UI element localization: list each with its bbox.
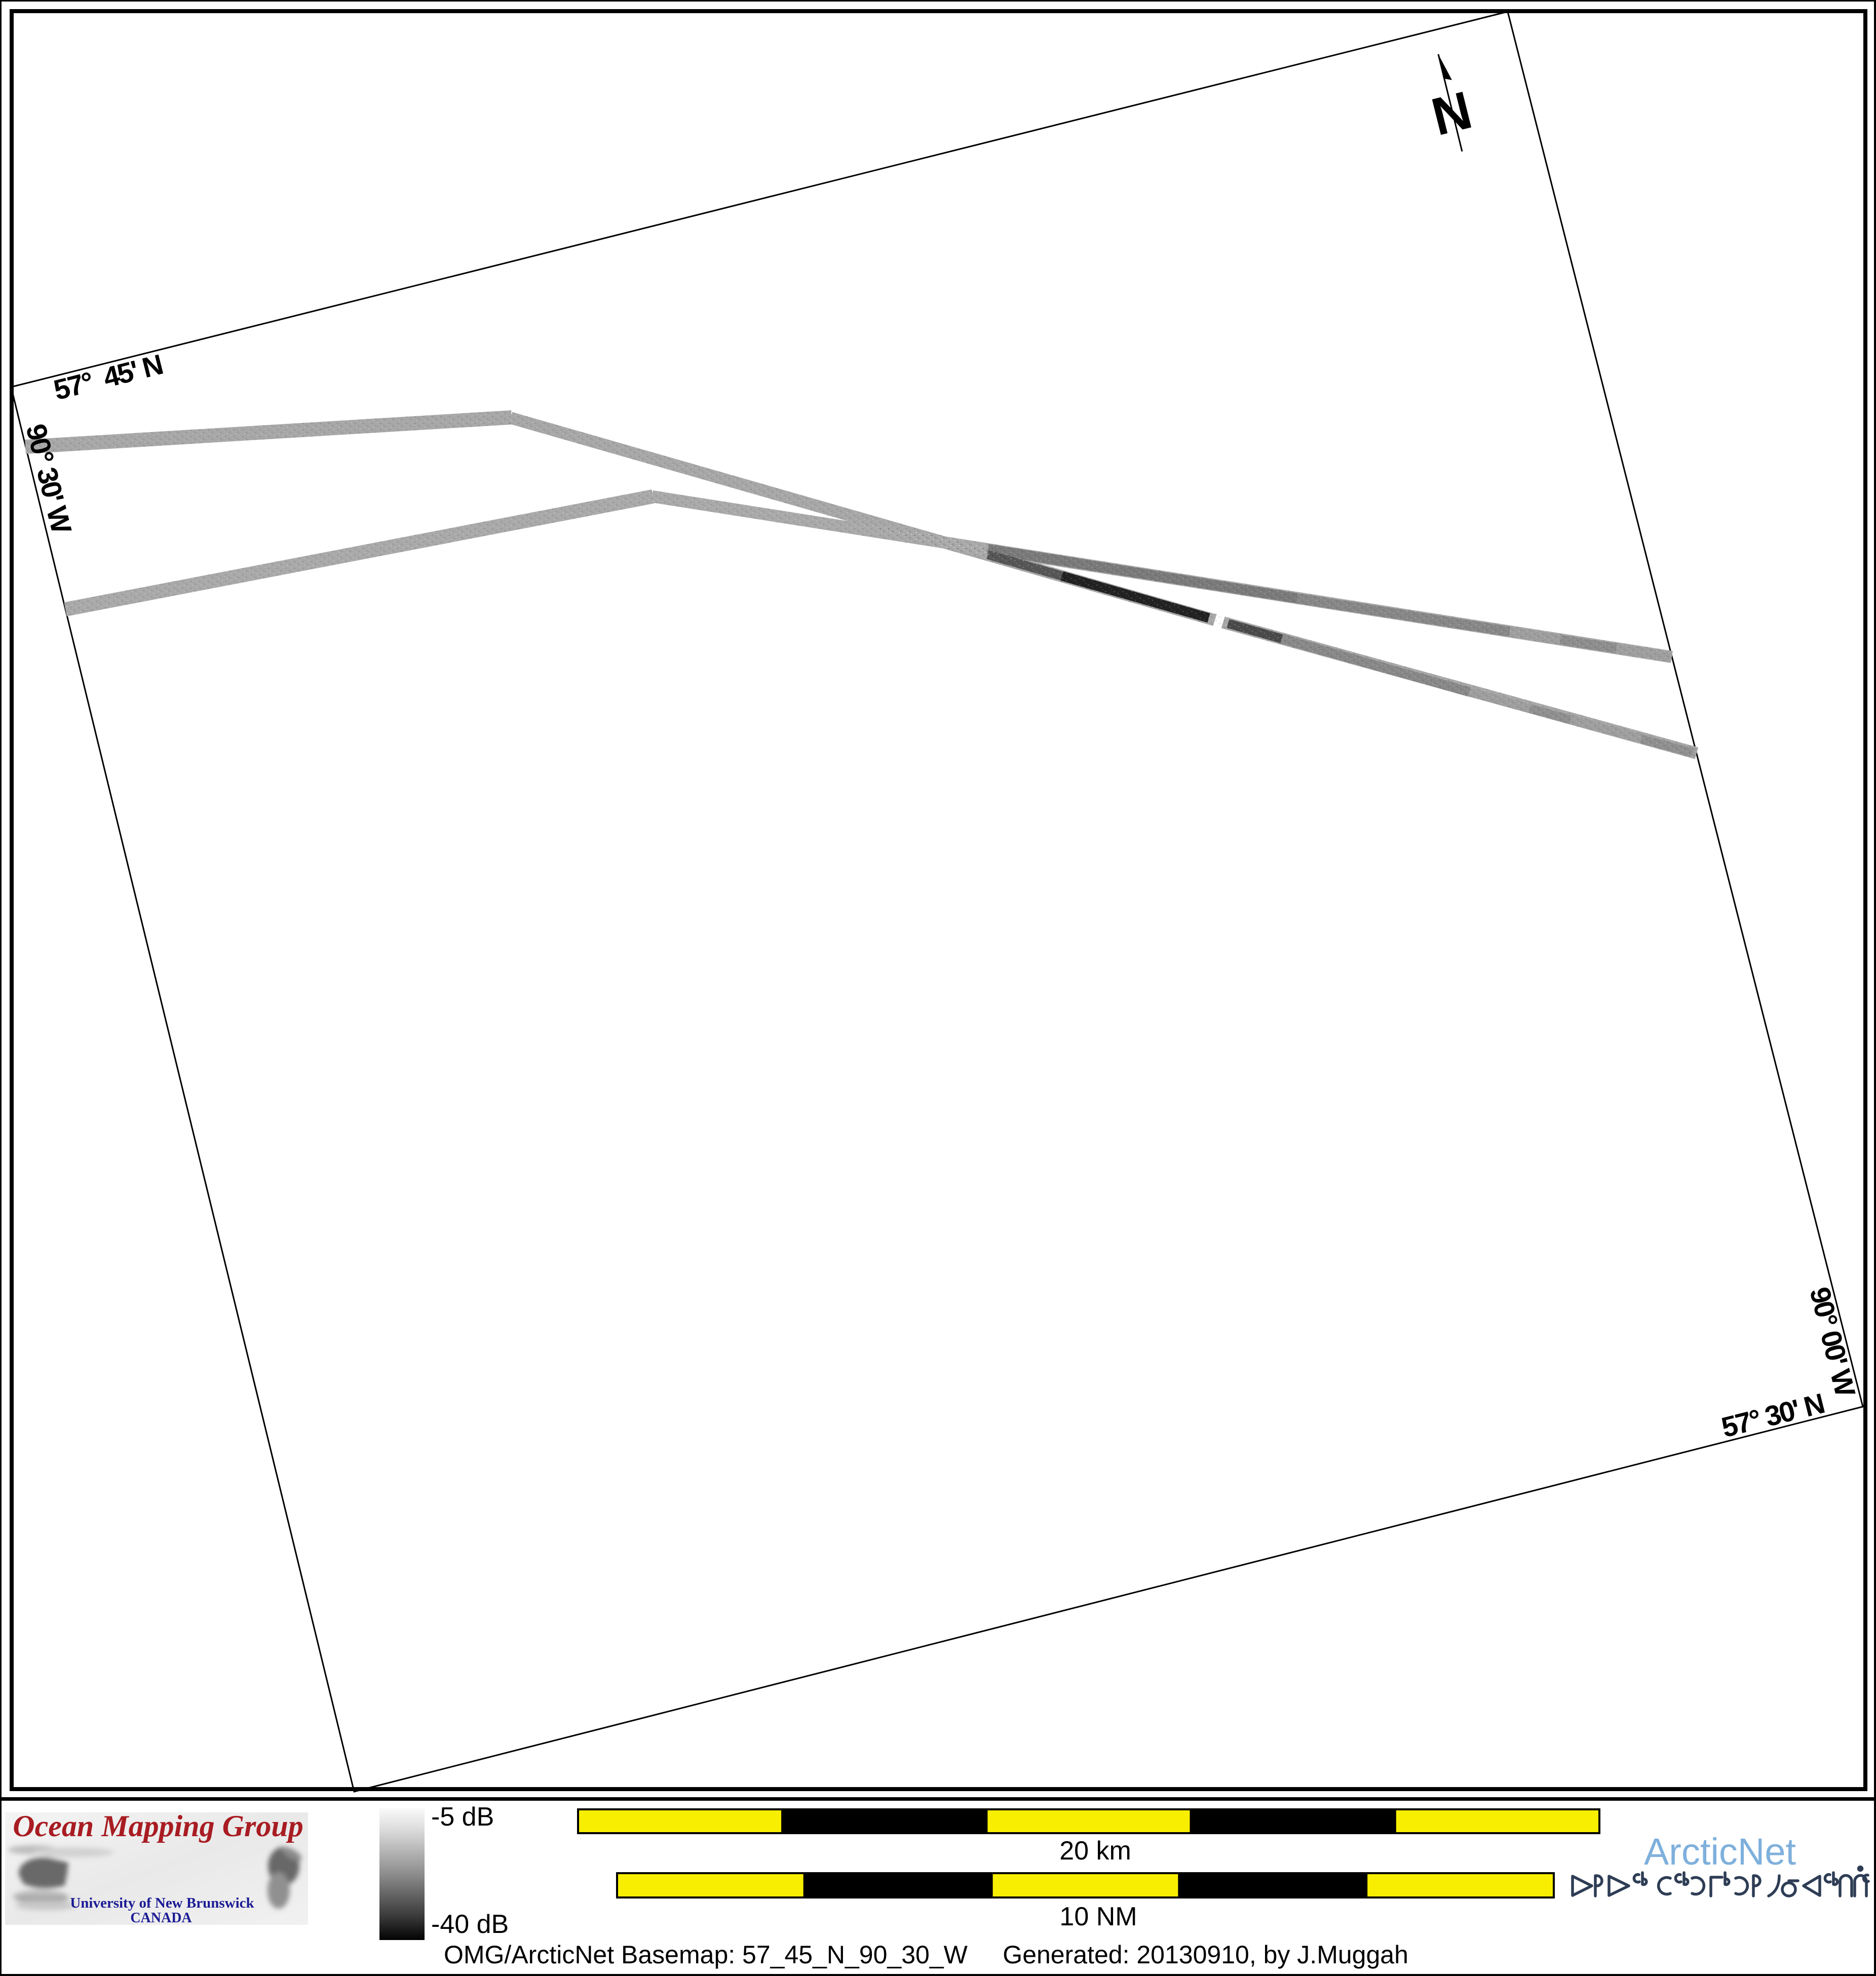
svg-text:OMG/ArcticNet Basemap: 57_45_N: OMG/ArcticNet Basemap: 57_45_N_90_30_W G… (444, 1941, 1408, 1969)
svg-text:-40 dB: -40 dB (431, 1910, 509, 1939)
svg-text:20 km: 20 km (1059, 1836, 1131, 1866)
svg-text:-5 dB: -5 dB (431, 1802, 494, 1832)
svg-text:10 NM: 10 NM (1059, 1902, 1137, 1931)
svg-text:Ocean Mapping Group: Ocean Mapping Group (13, 1809, 303, 1843)
svg-text:ArcticNet: ArcticNet (1644, 1831, 1796, 1873)
svg-text:University of New Brunswick: University of New Brunswick (70, 1895, 254, 1911)
svg-text:CANADA: CANADA (130, 1910, 192, 1926)
